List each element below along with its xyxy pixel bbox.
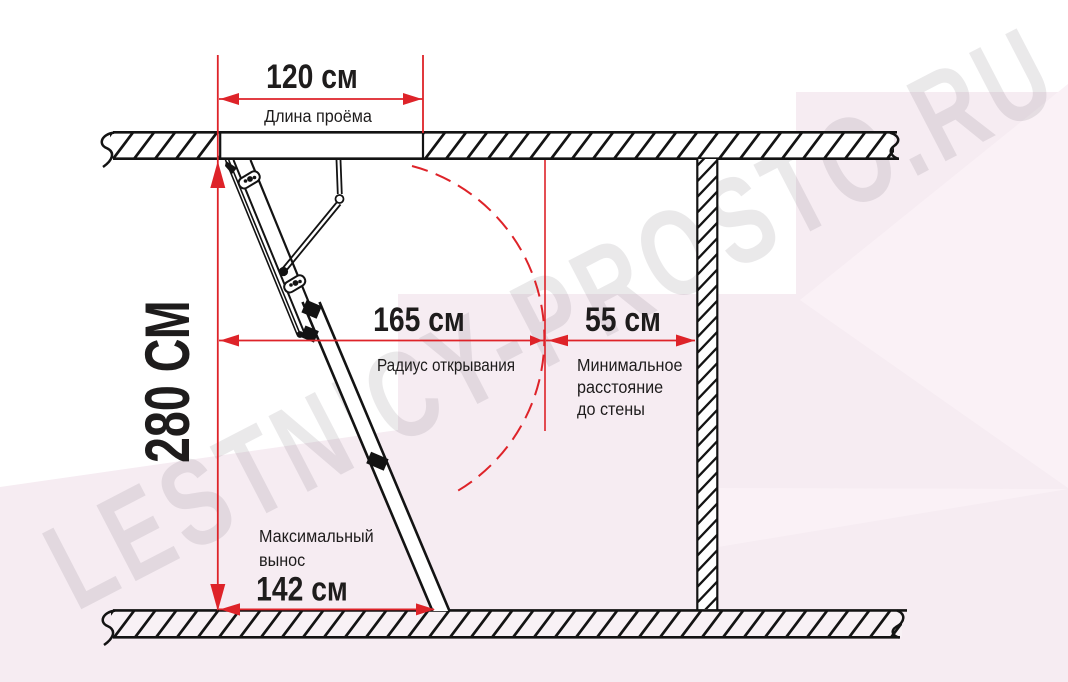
svg-text:Длина проёма: Длина проёма xyxy=(264,106,372,126)
svg-text:Радиус открывания: Радиус открывания xyxy=(377,355,515,375)
svg-text:165 см: 165 см xyxy=(373,299,465,338)
svg-text:280 СМ: 280 СМ xyxy=(132,300,202,463)
svg-text:Максимальный: Максимальный xyxy=(259,526,374,546)
svg-text:55 см: 55 см xyxy=(585,299,661,338)
svg-text:расстояние: расстояние xyxy=(577,377,663,397)
svg-text:Минимальное: Минимальное xyxy=(577,355,682,375)
svg-text:142 см: 142 см xyxy=(256,569,348,608)
svg-text:120 см: 120 см xyxy=(266,56,358,95)
svg-text:до стены: до стены xyxy=(577,399,645,419)
svg-text:вынос: вынос xyxy=(259,550,306,570)
